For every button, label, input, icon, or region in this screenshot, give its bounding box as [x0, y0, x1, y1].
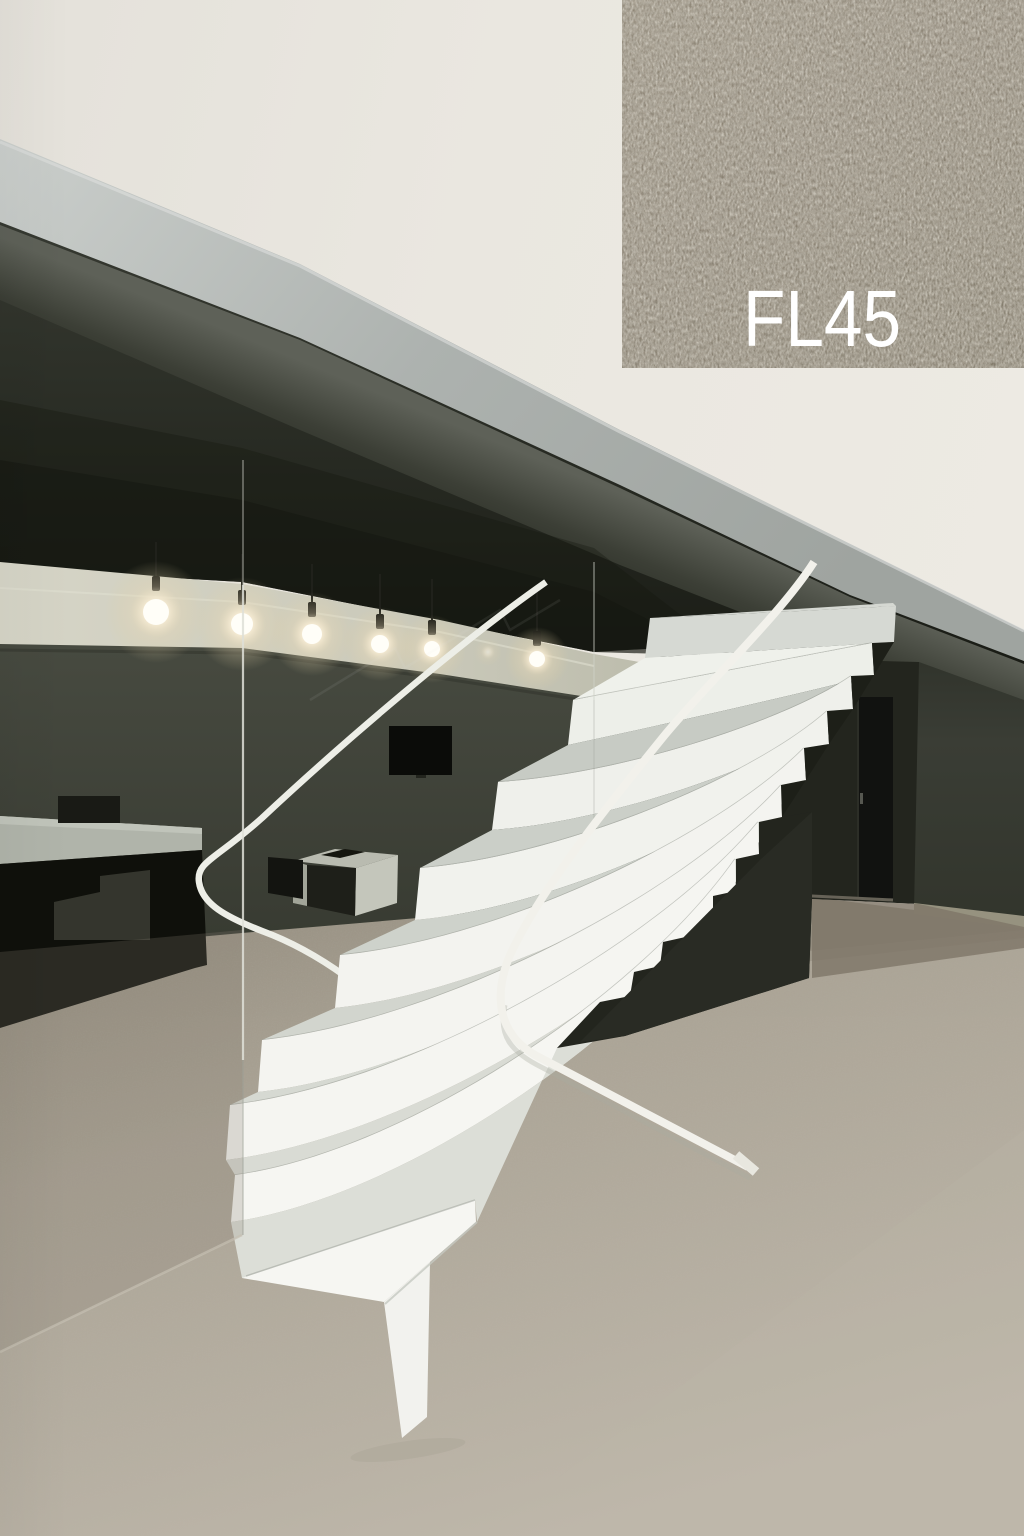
- svg-text:FL45: FL45: [743, 274, 901, 363]
